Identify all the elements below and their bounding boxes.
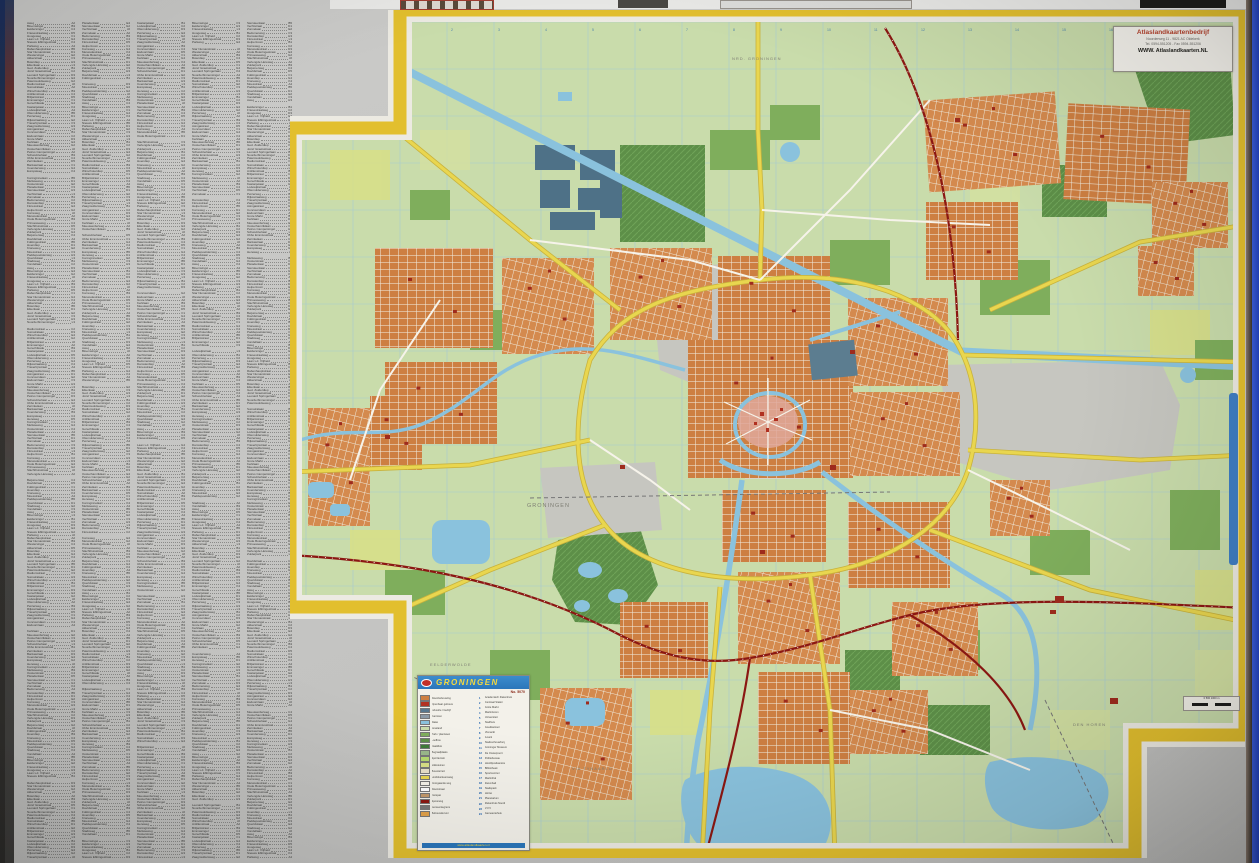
publisher-url: WWW. Atlaslandkaarten.NL (1117, 47, 1229, 55)
street-index: AwegA2BloemsingelB3EeldersingelC4Frieses… (0, 22, 296, 860)
svg-text:5: 5 (592, 28, 594, 32)
region-label: VIA TYNAARLO (572, 766, 613, 771)
index-column: AwegA2BloemsingelB3EeldersingelC4Frieses… (27, 22, 75, 860)
region-label: DEN HOREN (1073, 722, 1106, 727)
sliver-black-block (1140, 0, 1226, 8)
svg-text:17: 17 (1156, 845, 1160, 849)
right-edge-strip (1252, 0, 1259, 863)
index-column: BloemsingelF3EeldersingelH3Friesestraatw… (192, 22, 240, 860)
index-column: SiersteenlaanB5VechtstraatD1ZonnelaanE2B… (247, 22, 292, 860)
legend-title: GRONINGEN (436, 678, 499, 687)
map-sheet: 1122334455667788991010111112121313141415… (290, 10, 1245, 858)
legend-poi-column: 1Academisch Ziekenhuis2Centraal Station3… (479, 695, 527, 817)
index-entry: Nieuwe EbbingestraatD3 (82, 856, 130, 859)
border-blue-label (1229, 393, 1238, 565)
svg-text:10: 10 (827, 28, 831, 32)
legend-box: GRONINGEN No. 5070 WoonbebouwingOpenbaar… (417, 675, 530, 851)
legend-swatch-column: WoonbebouwingOpenbaar gebouwIndustrie / … (420, 695, 479, 817)
index-entry: ZaagmulderswegE2 (192, 856, 240, 859)
svg-text:4: 4 (545, 28, 547, 32)
index-column: PleiadenlaanE4SiersteenlaanG2Vechtstraat… (82, 22, 130, 860)
svg-text:6: 6 (639, 28, 641, 32)
region-label: NRD. GRONINGEN (732, 56, 782, 61)
sliver-outline-bar (720, 0, 912, 9)
index-entry: FloresstraatL3 (137, 856, 185, 859)
region-label: GRONINGEN (527, 503, 570, 509)
sliver-red-box (400, 0, 494, 10)
region-label: EELDERWOLDE (430, 662, 472, 667)
svg-text:2: 2 (451, 28, 453, 32)
legend-footer: www.atlaslandkaarten.nl (422, 843, 525, 849)
sliver-dark-block (618, 0, 668, 8)
svg-text:3: 3 (498, 28, 500, 32)
svg-text:15: 15 (1062, 28, 1066, 32)
publisher-box: Atlaslandkaartenbedrijf Noorderweg 11 - … (1113, 26, 1233, 72)
index-entry: TravertijnstraatJ2 (27, 856, 75, 859)
publisher-name: Atlaslandkaartenbedrijf (1117, 29, 1229, 37)
svg-text:8: 8 (733, 28, 735, 32)
svg-text:18: 18 (1203, 845, 1207, 849)
svg-text:11: 11 (874, 28, 878, 32)
svg-text:12: 12 (921, 28, 925, 32)
svg-text:7: 7 (686, 28, 688, 32)
svg-text:14: 14 (1015, 28, 1019, 32)
scale-bar: 0 500 1000 m (1183, 696, 1240, 711)
index-column: KastanjelaanB1LodewijkstraatC2Oliemulder… (137, 22, 185, 860)
legend-header: GRONINGEN (418, 676, 529, 689)
legend-item: Bebouwde kom (420, 811, 479, 817)
legend-poi: 24Gemeentehuis (479, 811, 527, 816)
index-entry: ParkwegA4 (247, 856, 292, 859)
scale-segments (1184, 703, 1239, 706)
top-sheet-sliver (330, 0, 1248, 9)
legend-body: WoonbebouwingOpenbaar gebouwIndustrie / … (418, 695, 529, 817)
svg-text:9: 9 (780, 28, 782, 32)
svg-text:13: 13 (968, 28, 972, 32)
publisher-logo-icon (421, 679, 432, 687)
publisher-phone: Tel. 0594-551205 - Fax 0594-551206 (1117, 42, 1229, 47)
scale-label: 0 500 1000 m (1184, 697, 1239, 701)
photo-frame: AwegA2BloemsingelB3EeldersingelC4Frieses… (0, 0, 1259, 863)
